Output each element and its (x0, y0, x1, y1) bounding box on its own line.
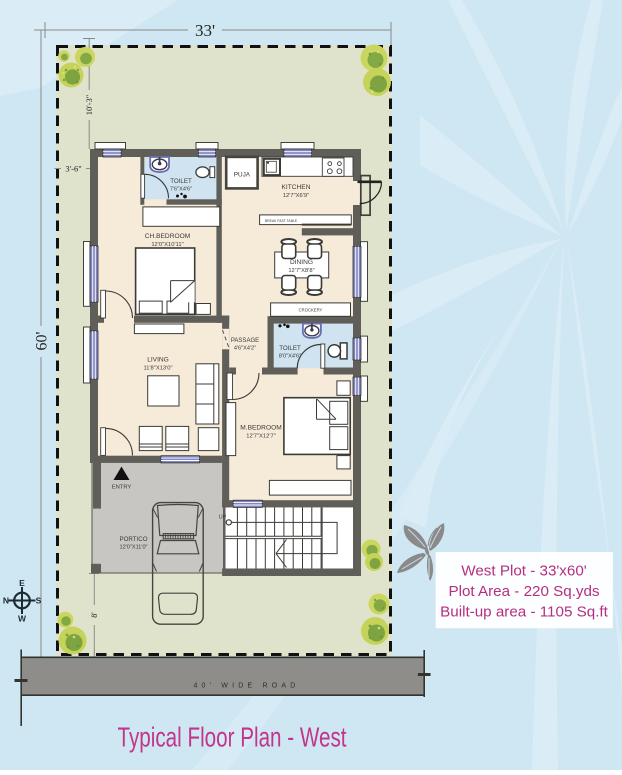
svg-text:PASSAGE: PASSAGE (231, 338, 259, 344)
svg-text:33': 33' (195, 21, 215, 40)
svg-text:40' WIDE ROAD: 40' WIDE ROAD (193, 683, 299, 690)
svg-text:3'-6": 3'-6" (65, 164, 81, 174)
svg-text:BREAK FAST TABLE: BREAK FAST TABLE (265, 219, 298, 223)
svg-text:12'7"X12'7": 12'7"X12'7" (246, 433, 276, 439)
svg-text:12'7"X6'9": 12'7"X6'9" (283, 193, 309, 199)
svg-text:PORTICO: PORTICO (119, 536, 147, 543)
svg-text:N: N (3, 596, 9, 606)
svg-text:ENTRY: ENTRY (112, 485, 132, 491)
svg-text:TOILET: TOILET (170, 178, 192, 185)
svg-text:W: W (18, 614, 27, 624)
svg-text:E: E (19, 578, 25, 588)
svg-text:Plot Area - 220 Sq.yds: Plot Area - 220 Sq.yds (448, 583, 600, 600)
svg-text:Built-up area - 1105 Sq.ft: Built-up area - 1105 Sq.ft (440, 604, 609, 621)
svg-text:UP: UP (219, 515, 227, 521)
svg-text:12'0"X11'0": 12'0"X11'0" (119, 545, 147, 551)
svg-text:4'6"X4'2": 4'6"X4'2" (234, 346, 256, 352)
svg-text:8': 8' (90, 612, 99, 618)
svg-text:KITCHEN: KITCHEN (282, 184, 311, 191)
svg-text:10'-3": 10'-3" (84, 95, 94, 116)
svg-text:60': 60' (34, 331, 51, 350)
svg-text:West Plot - 33'x60': West Plot - 33'x60' (461, 563, 586, 580)
svg-text:7'6"X4'6": 7'6"X4'6" (170, 187, 192, 193)
svg-text:11'8"X13'0": 11'8"X13'0" (143, 365, 172, 371)
svg-text:CROCKERY: CROCKERY (299, 308, 323, 313)
svg-text:12'7"X8'8": 12'7"X8'8" (288, 268, 314, 274)
svg-text:Typical Floor Plan - West: Typical Floor Plan - West (118, 722, 347, 753)
svg-text:PUJA: PUJA (234, 172, 251, 179)
svg-text:12'0"X10'11": 12'0"X10'11" (151, 242, 183, 248)
svg-text:S: S (36, 596, 42, 606)
svg-text:LIVING: LIVING (147, 357, 169, 364)
svg-text:M.BEDROOM: M.BEDROOM (240, 425, 281, 432)
svg-text:8'0"X4'6": 8'0"X4'6" (279, 354, 301, 360)
svg-text:TOILET: TOILET (279, 345, 301, 352)
svg-text:DINING: DINING (290, 259, 313, 266)
svg-text:CH.BEDROOM: CH.BEDROOM (145, 233, 190, 240)
